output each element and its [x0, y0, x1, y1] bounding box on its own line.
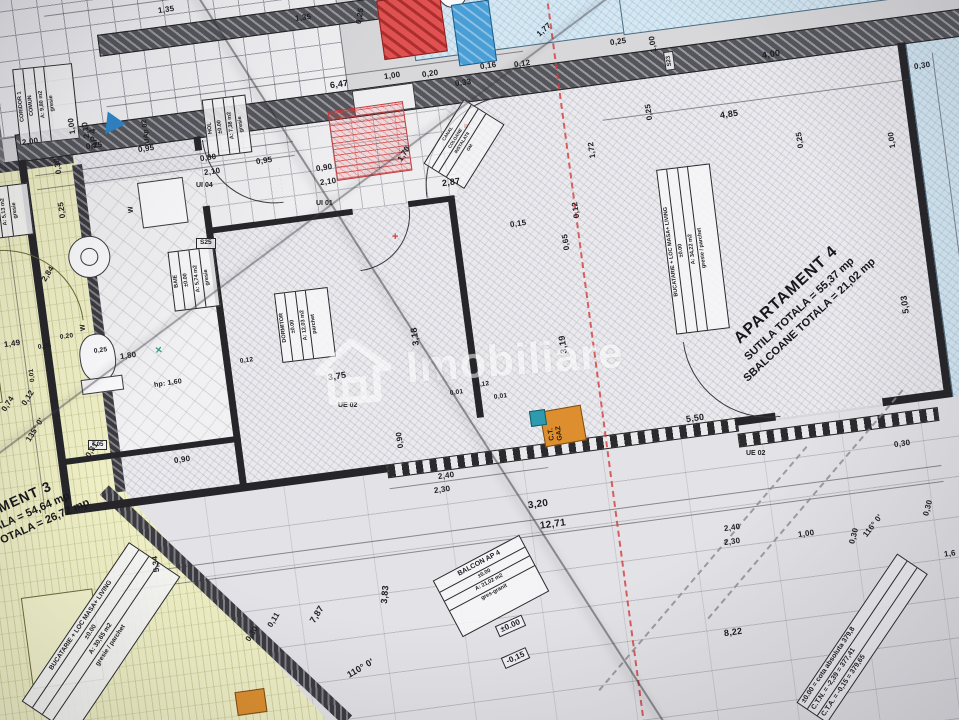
window-code-s23: S23	[663, 51, 676, 71]
dim-label: 3,18	[409, 327, 420, 346]
dim-label: 1,80	[120, 351, 137, 361]
dim-label: 2,00	[22, 137, 39, 147]
dim-label: 0,30	[244, 625, 259, 643]
dim-label: 0,11	[266, 611, 281, 629]
ct-gaz-box: C.T. GAZ	[539, 405, 587, 448]
stamp-baie3: ±0.00 A: 5,13 m2 gresie	[0, 183, 34, 240]
dim-label: 0,12	[20, 389, 35, 407]
window-code-s25: S25	[196, 238, 216, 249]
door-code-ue02-a: UE 02	[338, 402, 357, 409]
parapet-height: hp: 1,60	[154, 378, 183, 389]
dim-label: 1,49	[4, 339, 21, 349]
dim-label: 1,00	[648, 35, 658, 52]
dim-label: 2,10	[81, 121, 91, 138]
dim-label: 1,00	[798, 529, 815, 539]
dim-label: 0,95	[138, 144, 155, 154]
dim-label: 0,15	[510, 219, 527, 229]
dim-label: 2,10	[320, 177, 337, 187]
dim-label: 5,03	[899, 295, 910, 314]
annotation-layer: C.T. GAZ + ✕ CORIDOR 1 COMUN A: 9,80 m2 …	[0, 0, 959, 720]
dim-label: 0,90	[395, 431, 405, 448]
dim-label: 2,30	[434, 485, 451, 495]
room-area: A: 30,65 m2	[43, 557, 159, 720]
orange-box-small	[234, 688, 267, 716]
dim-label: 0,25	[94, 347, 108, 355]
ap4-arrow-icon	[96, 111, 125, 140]
dim-label: 0,30	[53, 157, 63, 174]
dim-label: 0,05	[38, 343, 52, 351]
dim-label: 0,25	[86, 141, 103, 151]
dim-label: 0,12	[240, 357, 254, 365]
dim-label: 0,90	[174, 455, 191, 465]
dim-label: 0,12	[571, 201, 581, 218]
legend-row-2: C.T.N. = -2,39 = 377,41	[808, 561, 917, 715]
dim-label: 12,71	[539, 518, 566, 532]
dim-label: 0,30	[914, 61, 931, 71]
dim-label: 0,25	[795, 131, 805, 148]
dim-label: 5,34	[151, 555, 161, 572]
dim-label: 0,12	[476, 381, 490, 389]
dim-label: 0,80	[200, 153, 217, 163]
dim-label: 2,84	[40, 265, 55, 283]
elevation-legend: ±0.00 = cota absoluta 379,8 C.T.N. = -2,…	[797, 553, 928, 720]
dim-label: 0,25	[57, 201, 67, 218]
dim-label: 2,30	[724, 537, 741, 547]
dim-label: 7,87	[308, 604, 325, 624]
legend-row-1: ±0.00 = cota absoluta 379,8	[798, 555, 907, 709]
red-highlight-box	[376, 0, 448, 60]
red-text-stamp	[327, 101, 412, 181]
apartment4-balcoane: SBALCOANE TOTALA = 21,02 mp	[714, 230, 905, 409]
dim-label: 5,50	[685, 413, 704, 424]
dim-label: 0,01	[29, 368, 37, 382]
elevation-zero: ±0.00	[495, 615, 526, 638]
angle-label: 116° 0'	[862, 513, 884, 538]
dim-label: 0,30	[848, 527, 860, 545]
stamp-canal: CANAL COLOANE INSTALATII GM	[424, 99, 505, 189]
dim-label: 0,65	[561, 233, 571, 250]
dim-label: 0,95	[256, 156, 273, 166]
red-cross-marker: +	[392, 232, 398, 243]
dim-label: 1,35	[295, 13, 312, 23]
dim-label: 1,72	[587, 141, 597, 158]
dim-label: 2,40	[724, 523, 741, 533]
apartment4-utila: SUTILA TOTALA = 55,37 mp	[704, 219, 895, 398]
teal-box-small	[529, 409, 547, 427]
dim-label: 8,22	[723, 627, 742, 638]
dim-label: 4,85	[719, 109, 738, 120]
gaz-label: GAZ	[555, 425, 564, 441]
dim-label: 0,25	[355, 7, 366, 25]
angle-label: 110° 0'	[346, 657, 376, 679]
dim-label: 1,6	[944, 549, 957, 559]
dim-label: 0,16	[480, 61, 497, 71]
dim-label: 2,87	[441, 177, 460, 188]
dim-label: 0,30	[922, 499, 934, 517]
room-level: ±0.00	[33, 550, 149, 714]
dim-label: 2,10	[204, 167, 221, 177]
dim-label: 1,77	[535, 22, 553, 39]
dim-label: 0,25	[644, 103, 654, 120]
dim-label: 2,40	[438, 471, 455, 481]
angle-label: 135° 0'	[25, 417, 46, 444]
dim-label: 0,20	[422, 69, 439, 79]
dim-label: 0,01	[450, 389, 464, 397]
dim-label: 0,33	[455, 78, 472, 88]
washer-mark-w2: W	[79, 324, 87, 332]
dim-label: 1,35	[158, 5, 175, 15]
dim-label: 3,19	[557, 335, 568, 354]
dim-label: 0,25	[610, 37, 627, 47]
dim-label: 0,01	[494, 393, 508, 401]
door-code-uap02: UAp 02	[141, 119, 151, 144]
stamp-hol: HOL ±0.00 A: 7,38 m2 gresie	[202, 95, 253, 158]
dim-label: 0,90	[316, 163, 333, 173]
dim-label: 0,30	[894, 439, 911, 449]
stamp-baie: BAIE ±0.00 A: 5,74 m2 gresie	[168, 246, 221, 311]
dim-label: 3,20	[527, 499, 548, 512]
stamp-dormitor: DORMITOR ±0.00 A: 12,03 m2 parchet	[274, 287, 336, 363]
dim-label: 3,75	[327, 371, 346, 382]
dim-label: 0,20	[60, 333, 74, 341]
washer-mark-w1: W	[127, 206, 135, 214]
dim-label: 1,00	[887, 131, 897, 148]
teal-cross-marker: ✕	[154, 346, 163, 356]
blue-highlight-box	[451, 0, 497, 66]
dim-label: 1,00	[384, 71, 401, 81]
stamp-balcon: BALCON AP 4 ±0.00 A: 21,02 m2 gres-grani…	[433, 535, 550, 638]
dim-label: 6,47	[329, 79, 348, 90]
door-code-ui01: UI 01	[316, 200, 333, 207]
dim-label: 0,74	[0, 395, 15, 413]
stamp-living4: BUCATARIE + LOC MASA+ LIVING ±0.00 A: 34…	[656, 163, 730, 334]
door-code-ue02-b: UE 02	[746, 450, 765, 457]
floor-plan-photo: C.T. GAZ + ✕ CORIDOR 1 COMUN A: 9,80 m2 …	[0, 0, 959, 720]
elevation-minus015: -0,15	[501, 647, 531, 669]
door-code-ui04: UI 04	[196, 182, 213, 189]
dim-label: 0,12	[514, 59, 531, 69]
dim-label: 4,00	[761, 49, 780, 60]
dim-label: 3,83	[380, 585, 391, 604]
